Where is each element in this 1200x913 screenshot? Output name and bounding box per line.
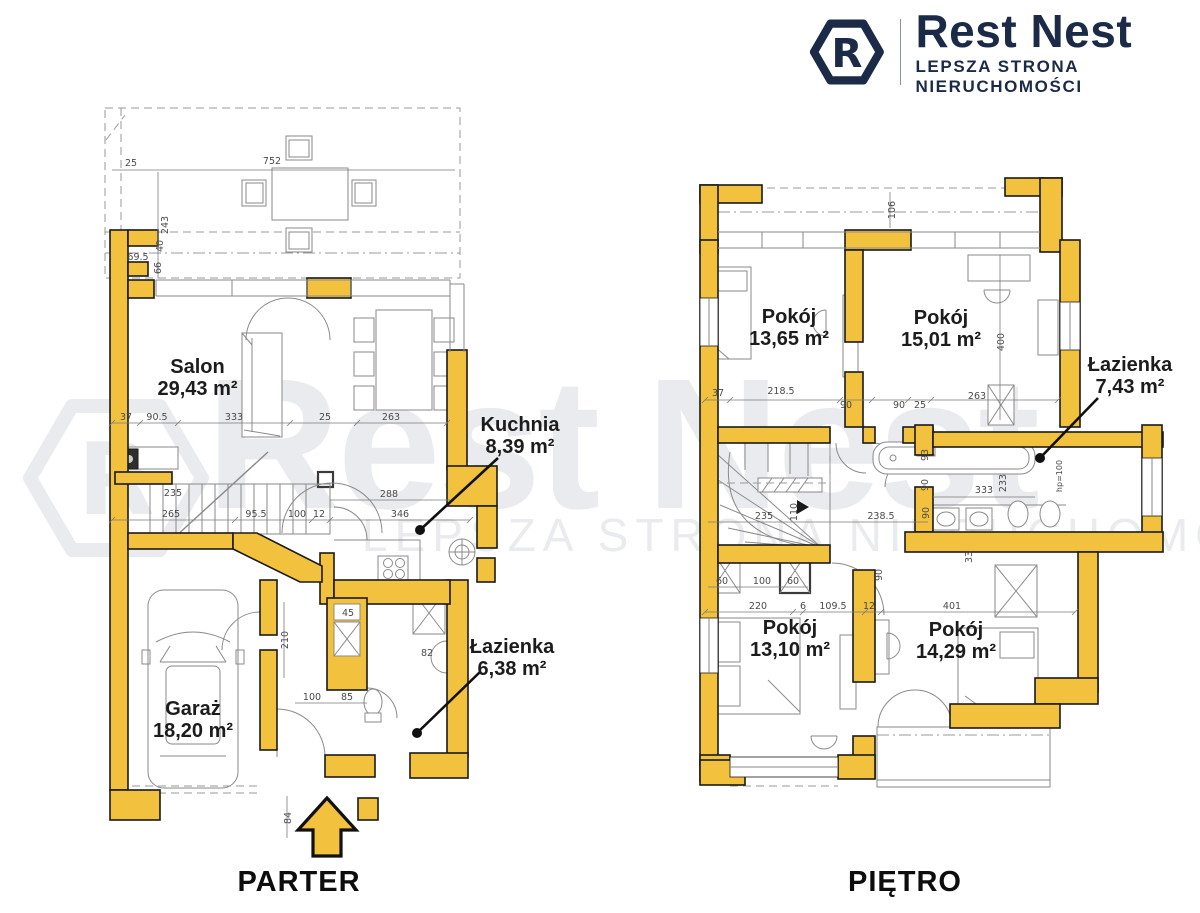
room-label-pokoj-1: Pokój 13,65 m²: [724, 306, 854, 350]
dim-text: 90: [893, 400, 905, 411]
dim-text: 6: [800, 601, 806, 612]
room-name: Łazienka: [447, 636, 577, 658]
room-label-kuchnia: Kuchnia 8,39 m²: [455, 414, 585, 458]
dim-text: 110: [789, 503, 800, 521]
dim-text: 235: [164, 488, 182, 499]
room-name: Pokój: [891, 619, 1021, 641]
dim-text: 93: [920, 449, 931, 461]
dim-text: 84: [283, 812, 294, 824]
room-label-pokoj-4: Pokój 14,29 m²: [891, 619, 1021, 663]
room-name: Pokój: [724, 306, 854, 328]
dim-text: 401: [943, 601, 961, 612]
rest-nest-logo: R Rest Nest LEPSZA STRONA NIERUCHOMOŚCI: [808, 6, 1200, 98]
dim-text: 90: [920, 479, 931, 491]
dim-text: 210: [280, 631, 291, 649]
room-area: 18,20 m²: [128, 720, 258, 742]
dim-text: 45: [342, 608, 354, 619]
dim-text: 333: [975, 485, 993, 496]
dim-text: 218.5: [767, 386, 794, 397]
room-name: Salon: [130, 356, 265, 378]
room-area: 7,43 m²: [1065, 376, 1195, 398]
room-label-lazienka-pietro: Łazienka 7,43 m²: [1065, 354, 1195, 398]
dim-text: 37: [712, 388, 724, 399]
dim-text: 235: [755, 511, 773, 522]
dim-text: 95.5: [245, 509, 266, 520]
dim-text: 85: [341, 692, 353, 703]
dim-text: 12: [863, 601, 875, 612]
dim-text: 66: [153, 262, 164, 274]
room-name: Łazienka: [1065, 354, 1195, 376]
logo-hexagon-icon: R: [808, 6, 886, 98]
room-label-pokoj-3: Pokój 13,10 m²: [725, 617, 855, 661]
room-area: 15,01 m²: [876, 329, 1006, 351]
dim-text: 100: [288, 509, 306, 520]
dim-text: 40: [155, 240, 166, 252]
room-name: Garaż: [128, 698, 258, 720]
floorplan-page: R Rest Nest LEPSZA STRONA NIERUCHOMOŚCI: [0, 0, 1200, 913]
room-area: 8,39 m²: [455, 436, 585, 458]
dim-text: 25: [319, 412, 331, 423]
dim-text: 106: [887, 201, 898, 219]
dim-text: 25: [914, 400, 926, 411]
dim-text: 288: [380, 489, 398, 500]
room-area: 14,29 m²: [891, 641, 1021, 663]
room-label-pokoj-2: Pokój 15,01 m²: [876, 307, 1006, 351]
dim-text: 25: [125, 158, 137, 169]
dim-text: 346: [391, 509, 409, 520]
dim-text: 100: [753, 576, 771, 587]
dim-text: 109.5: [819, 601, 846, 612]
room-label-salon: Salon 29,43 m²: [130, 356, 265, 400]
room-area: 29,43 m²: [130, 378, 265, 400]
dim-text: 60: [787, 576, 799, 587]
dim-text: 263: [968, 391, 986, 402]
logo-brand-text: Rest Nest: [915, 7, 1200, 55]
room-area: 6,38 m²: [447, 658, 577, 680]
dim-text: 100: [303, 692, 321, 703]
dim-text: 60: [716, 576, 728, 587]
logo-tagline-text: LEPSZA STRONA NIERUCHOMOŚCI: [915, 57, 1200, 97]
dim-text: 37: [120, 412, 132, 423]
parter-furniture: [120, 136, 475, 788]
room-name: Kuchnia: [455, 414, 585, 436]
room-name: Pokój: [876, 307, 1006, 329]
dim-text: 82: [421, 648, 433, 659]
dim-text: 220: [749, 601, 767, 612]
room-label-lazienka-parter: Łazienka 6,38 m²: [447, 636, 577, 680]
dim-text: 12: [313, 509, 325, 520]
pietro-plan: 106 37 218.5 90 90 25 263 400 93 90 333 …: [700, 178, 1163, 787]
dim-text: 243: [160, 216, 171, 234]
parter-plan: 25 752 243 40 69.5 66 37 90.5 333 25 263…: [105, 108, 498, 856]
dim-text: 90.5: [146, 412, 167, 423]
logo-icon-letter: R: [831, 30, 862, 77]
dim-text: 265: [162, 509, 180, 520]
dim-text: 33: [964, 551, 975, 563]
room-label-garaz: Garaż 18,20 m²: [128, 698, 258, 742]
dim-text: 752: [263, 156, 281, 167]
dim-text: 69.5: [127, 252, 148, 263]
caption-pietro: PIĘTRO: [805, 866, 1005, 899]
dim-text: 263: [382, 412, 400, 423]
dim-text: 90: [921, 507, 932, 519]
entrance-arrow: [298, 798, 356, 856]
floor-plans-canvas: 25 752 243 40 69.5 66 37 90.5 333 25 263…: [0, 0, 1200, 913]
logo-divider: [900, 19, 902, 85]
lazienka-parter-leader-line: [412, 672, 480, 738]
dim-text: 90: [874, 569, 885, 581]
room-name: Pokój: [725, 617, 855, 639]
dim-text: hp=100: [1055, 460, 1064, 492]
room-area: 13,10 m²: [725, 639, 855, 661]
dim-text: 238.5: [867, 511, 894, 522]
dim-text: 233: [998, 474, 1009, 492]
caption-parter: PARTER: [199, 866, 399, 899]
room-area: 13,65 m²: [724, 328, 854, 350]
dim-text: 90: [840, 400, 852, 411]
dim-text: 333: [225, 412, 243, 423]
